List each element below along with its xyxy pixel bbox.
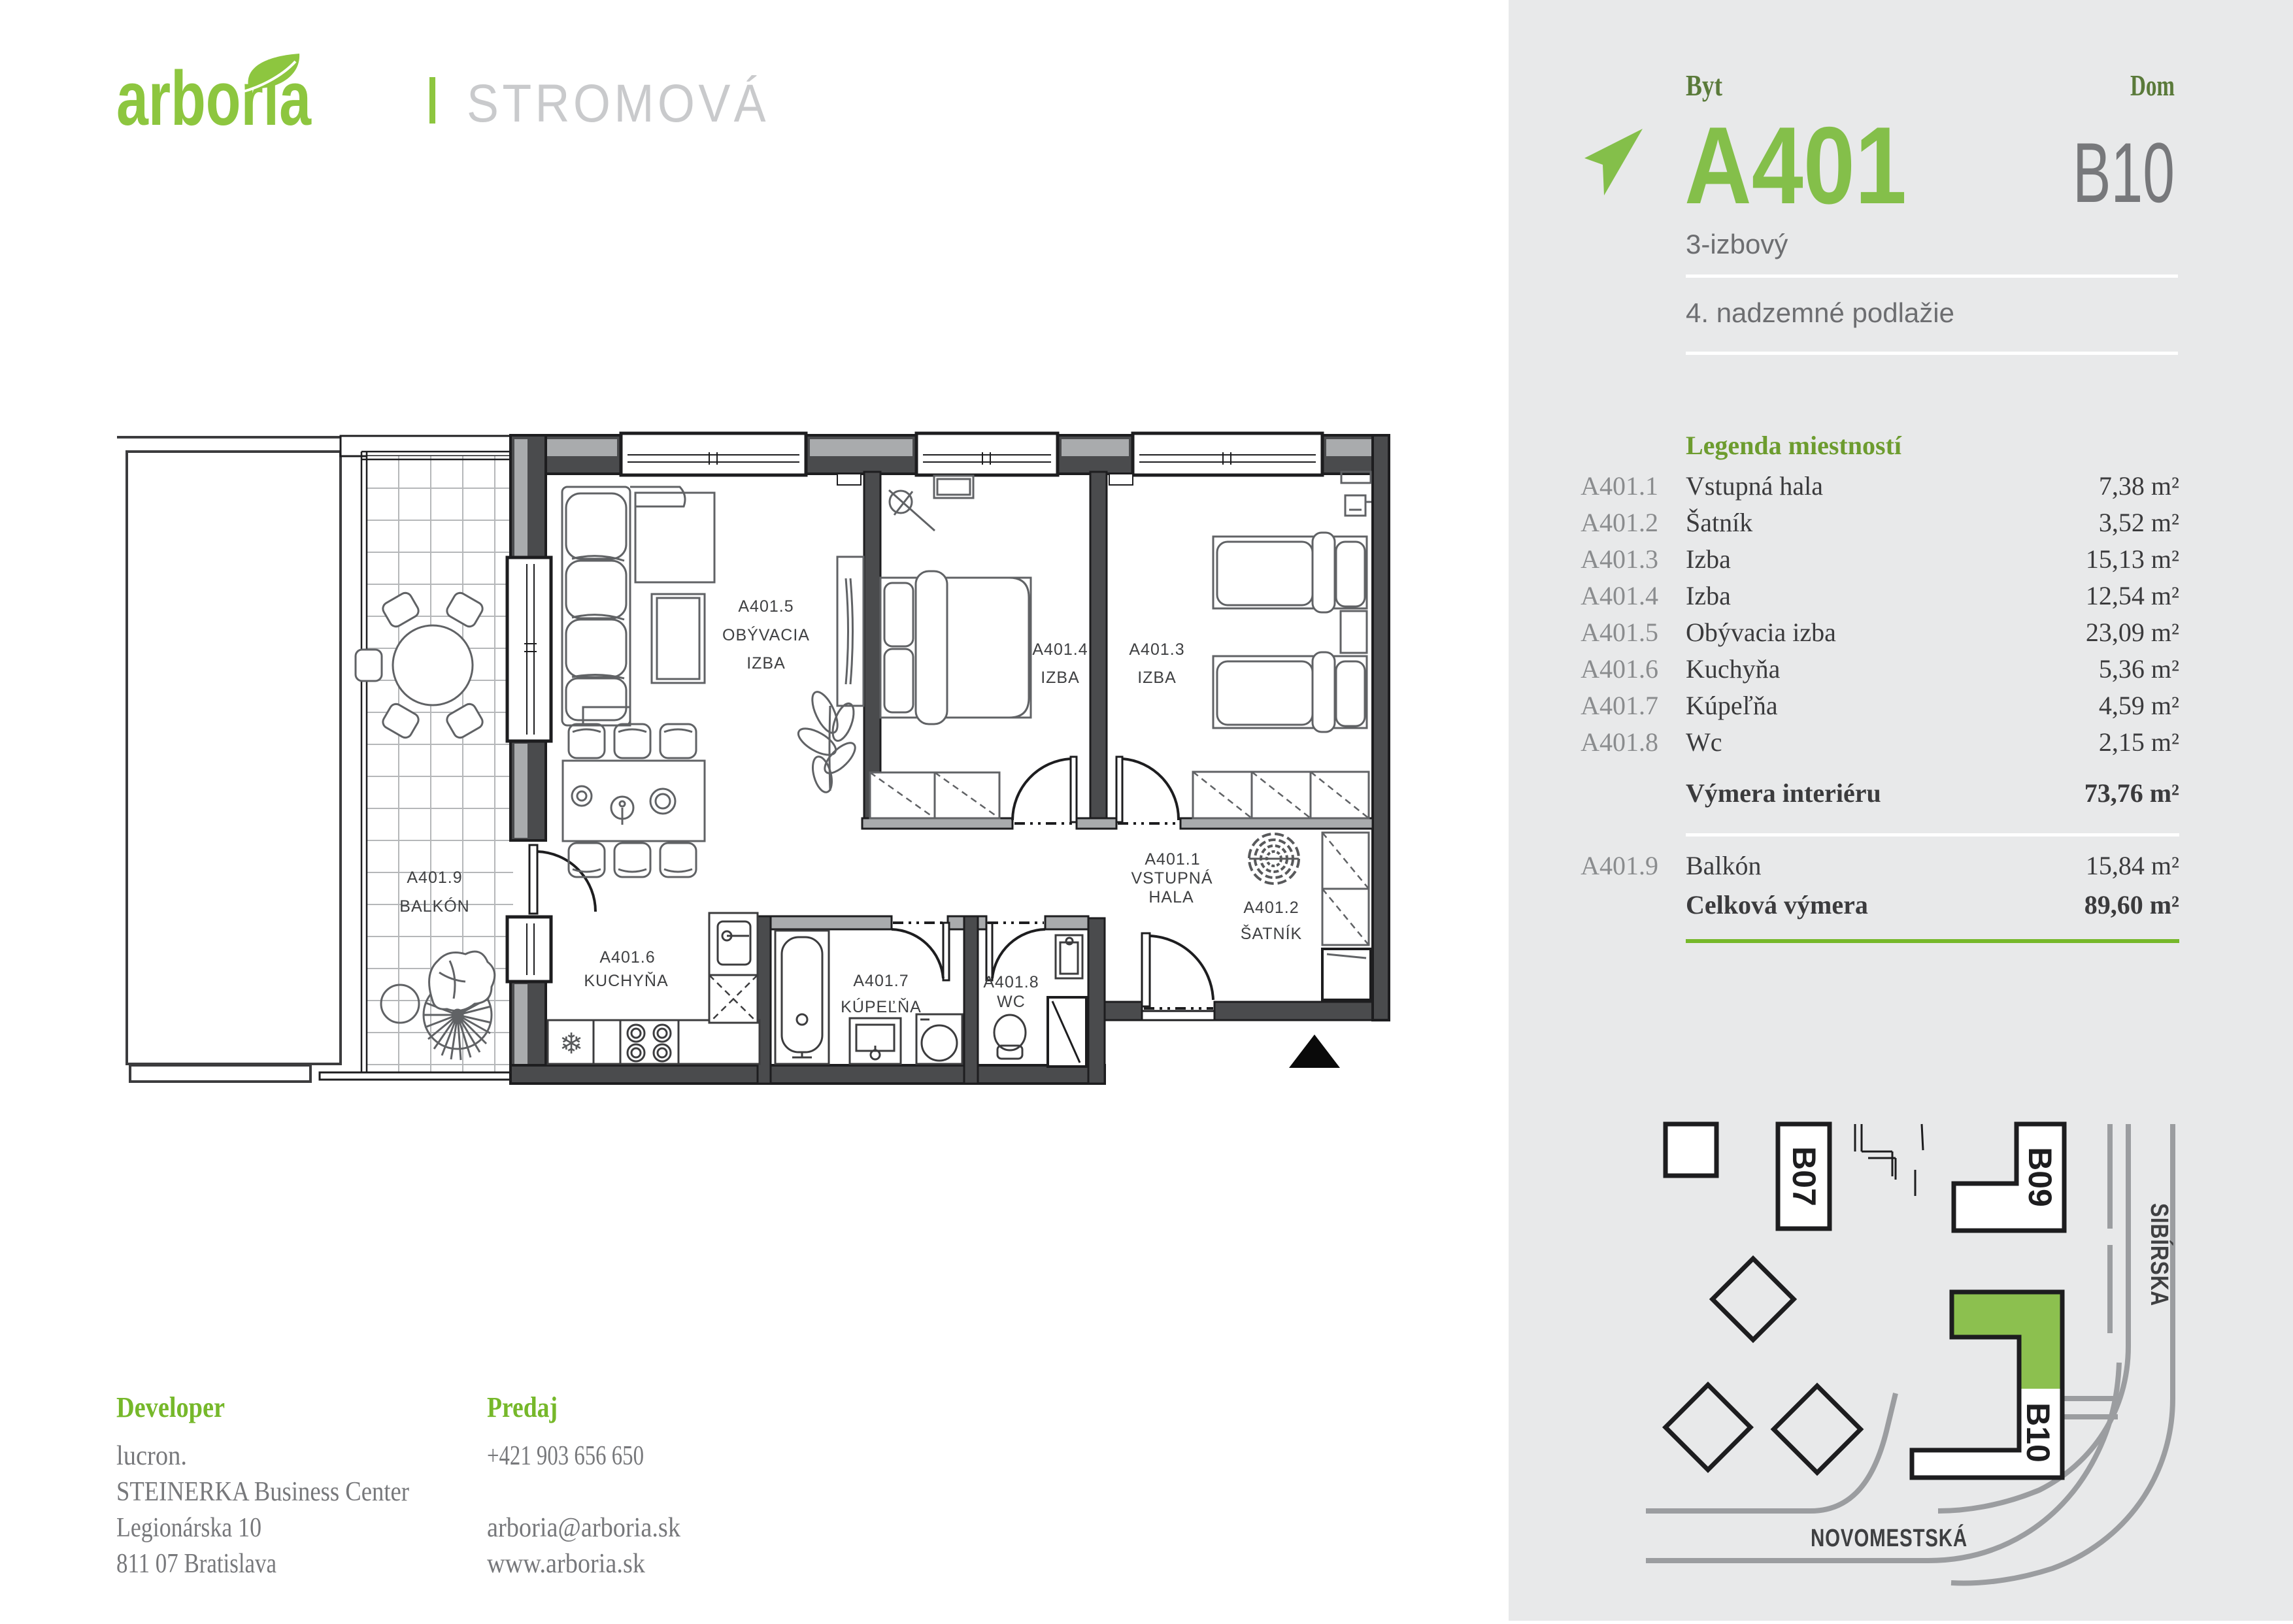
- svg-text:A401.8: A401.8: [983, 973, 1039, 991]
- svg-text:OBÝVACIA: OBÝVACIA: [722, 625, 810, 644]
- svg-text:A401.1: A401.1: [1145, 850, 1200, 869]
- svg-text:www.arboria.sk: www.arboria.sk: [487, 1549, 645, 1579]
- svg-text:KUCHYŇA: KUCHYŇA: [584, 971, 668, 990]
- svg-text:arboria@arboria.sk: arboria@arboria.sk: [487, 1513, 680, 1543]
- svg-text:4. nadzemné podlažie: 4. nadzemné podlažie: [1686, 297, 1954, 328]
- svg-text:BALKÓN: BALKÓN: [399, 897, 469, 916]
- svg-text:Developer: Developer: [116, 1391, 225, 1423]
- svg-text:+421 903 656 650: +421 903 656 650: [487, 1441, 644, 1471]
- svg-text:7,38 m²: 7,38 m²: [2099, 471, 2179, 501]
- svg-text:Izba: Izba: [1686, 581, 1731, 610]
- svg-text:B10: B10: [2073, 125, 2175, 220]
- svg-text:A401.4: A401.4: [1581, 581, 1658, 610]
- svg-text:Balkón: Balkón: [1686, 851, 1762, 880]
- svg-text:VSTUPNÁ: VSTUPNÁ: [1131, 869, 1213, 887]
- svg-text:3,52 m²: 3,52 m²: [2099, 508, 2179, 537]
- svg-text:A401.6: A401.6: [1581, 654, 1658, 684]
- svg-text:23,09 m²: 23,09 m²: [2086, 618, 2179, 647]
- svg-text:A401.3: A401.3: [1129, 640, 1184, 659]
- svg-text:A401.7: A401.7: [1581, 691, 1658, 720]
- svg-text:15,84 m²: 15,84 m²: [2086, 851, 2179, 880]
- svg-text:B07: B07: [1786, 1146, 1822, 1206]
- svg-text:Vstupná hala: Vstupná hala: [1686, 471, 1823, 501]
- svg-text:Wc: Wc: [1686, 727, 1722, 757]
- svg-text:A401.2: A401.2: [1243, 899, 1299, 917]
- svg-text:15,13 m²: 15,13 m²: [2086, 544, 2179, 574]
- svg-text:HALA: HALA: [1148, 888, 1194, 906]
- svg-text:STEINERKA Business Center: STEINERKA Business Center: [116, 1477, 409, 1507]
- svg-text:A401.5: A401.5: [738, 597, 794, 616]
- svg-text:B09: B09: [2022, 1147, 2058, 1207]
- svg-text:NOVOMESTSKÁ: NOVOMESTSKÁ: [1811, 1523, 1967, 1552]
- svg-text:WC: WC: [997, 993, 1026, 1011]
- svg-text:A401.9: A401.9: [1581, 851, 1658, 880]
- svg-text:Kuchyňa: Kuchyňa: [1686, 654, 1781, 684]
- svg-text:A401.3: A401.3: [1581, 544, 1658, 574]
- svg-text:89,60 m²: 89,60 m²: [2084, 890, 2179, 920]
- svg-text:2,15 m²: 2,15 m²: [2099, 727, 2179, 757]
- svg-text:73,76 m²: 73,76 m²: [2084, 778, 2179, 808]
- svg-text:A401.6: A401.6: [599, 948, 655, 967]
- svg-text:811 07 Bratislava: 811 07 Bratislava: [116, 1549, 276, 1579]
- svg-text:IZBA: IZBA: [1137, 669, 1177, 687]
- svg-text:Šatník: Šatník: [1686, 508, 1752, 537]
- svg-text:A401.7: A401.7: [853, 972, 909, 990]
- svg-text:A401: A401: [1684, 104, 1907, 227]
- svg-text:A401.4: A401.4: [1032, 640, 1088, 659]
- svg-text:Legenda miestností: Legenda miestností: [1686, 431, 1902, 460]
- svg-text:Kúpeľňa: Kúpeľňa: [1686, 691, 1778, 720]
- svg-text:Byt: Byt: [1686, 69, 1722, 102]
- svg-text:A401.8: A401.8: [1581, 727, 1658, 757]
- svg-text:Legionárska 10: Legionárska 10: [116, 1513, 261, 1543]
- svg-text:5,36 m²: 5,36 m²: [2099, 654, 2179, 684]
- svg-text:IZBA: IZBA: [1041, 669, 1080, 687]
- svg-text:Výmera interiéru: Výmera interiéru: [1686, 778, 1881, 808]
- svg-text:lucron.: lucron.: [116, 1441, 187, 1471]
- svg-text:Celková výmera: Celková výmera: [1686, 890, 1868, 920]
- svg-text:Izba: Izba: [1686, 544, 1731, 574]
- svg-text:STROMOVÁ: STROMOVÁ: [467, 74, 769, 133]
- svg-text:12,54 m²: 12,54 m²: [2086, 581, 2179, 610]
- svg-text:KÚPEĽŇA: KÚPEĽŇA: [841, 997, 922, 1016]
- svg-text:Dom: Dom: [2130, 69, 2175, 102]
- svg-text:ŠATNÍK: ŠATNÍK: [1241, 924, 1302, 943]
- svg-text:A401.5: A401.5: [1581, 618, 1658, 647]
- svg-text:B10: B10: [2020, 1402, 2056, 1463]
- svg-text:A401.9: A401.9: [407, 869, 462, 887]
- svg-text:❄: ❄: [560, 1028, 584, 1060]
- svg-text:IZBA: IZBA: [746, 654, 786, 672]
- svg-text:3-izbový: 3-izbový: [1686, 229, 1788, 259]
- svg-text:A401.2: A401.2: [1581, 508, 1658, 537]
- svg-text:SIBÍRSKA: SIBÍRSKA: [2145, 1203, 2174, 1306]
- svg-text:Obývacia izba: Obývacia izba: [1686, 618, 1836, 647]
- svg-text:4,59 m²: 4,59 m²: [2099, 691, 2179, 720]
- svg-text:A401.1: A401.1: [1581, 471, 1658, 501]
- svg-text:Predaj: Predaj: [487, 1391, 558, 1423]
